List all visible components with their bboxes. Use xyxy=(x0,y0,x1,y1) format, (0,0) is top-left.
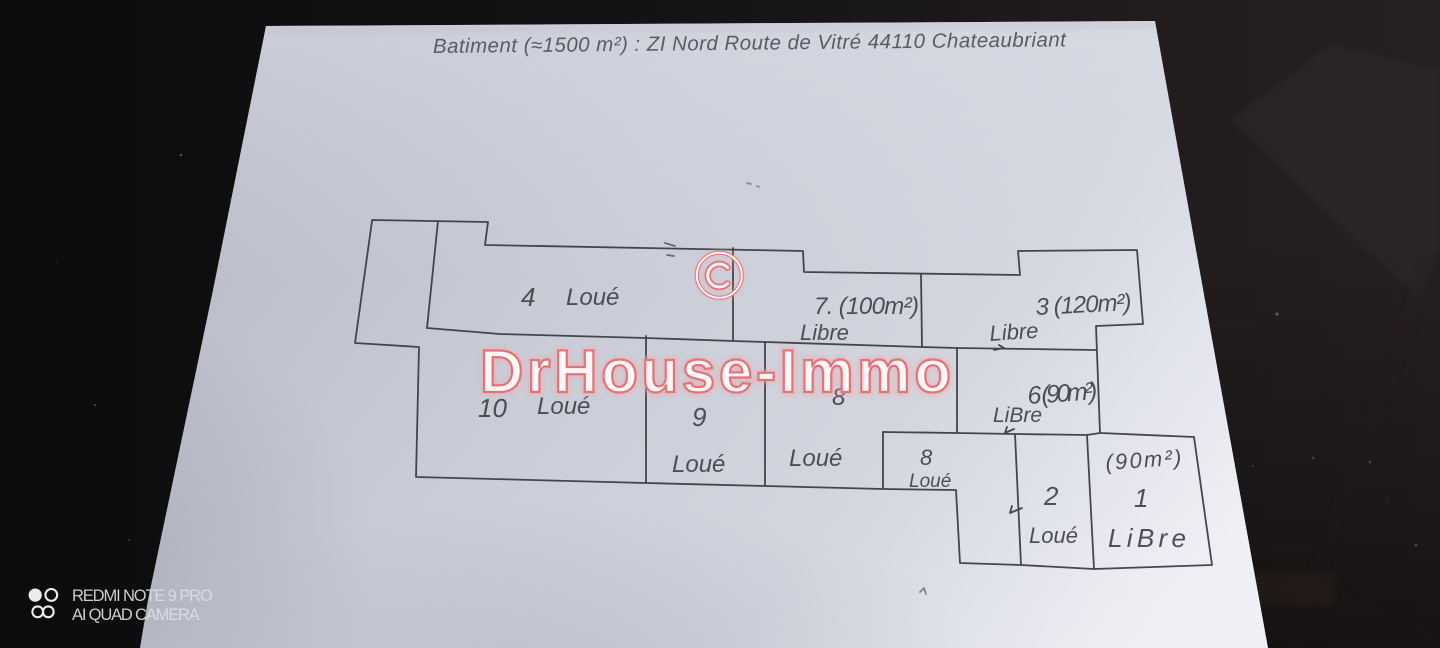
svg-text:9: 9 xyxy=(692,402,706,432)
svg-text:AI QUAD CAMERA: AI QUAD CAMERA xyxy=(72,606,200,624)
svg-text:Loué: Loué xyxy=(1029,523,1078,548)
svg-text:REDMI NOTE 9 PRO: REDMI NOTE 9 PRO xyxy=(72,587,213,605)
svg-text:LiBre: LiBre xyxy=(993,404,1042,427)
svg-text:Libre: Libre xyxy=(989,318,1040,346)
svg-text:LiBre: LiBre xyxy=(1108,523,1186,553)
svg-text:7. (100m²): 7. (100m²) xyxy=(814,293,919,320)
svg-text:Loué: Loué xyxy=(672,451,725,478)
svg-text:1: 1 xyxy=(1134,483,1148,513)
svg-text:Loué: Loué xyxy=(789,445,842,472)
svg-text:3 (120m²): 3 (120m²) xyxy=(1035,289,1132,321)
svg-text:8: 8 xyxy=(920,445,933,470)
svg-text:4: 4 xyxy=(521,282,535,312)
svg-text:Loué: Loué xyxy=(909,471,951,492)
svg-text:2: 2 xyxy=(1043,481,1059,511)
svg-text:Loué: Loué xyxy=(566,284,619,311)
